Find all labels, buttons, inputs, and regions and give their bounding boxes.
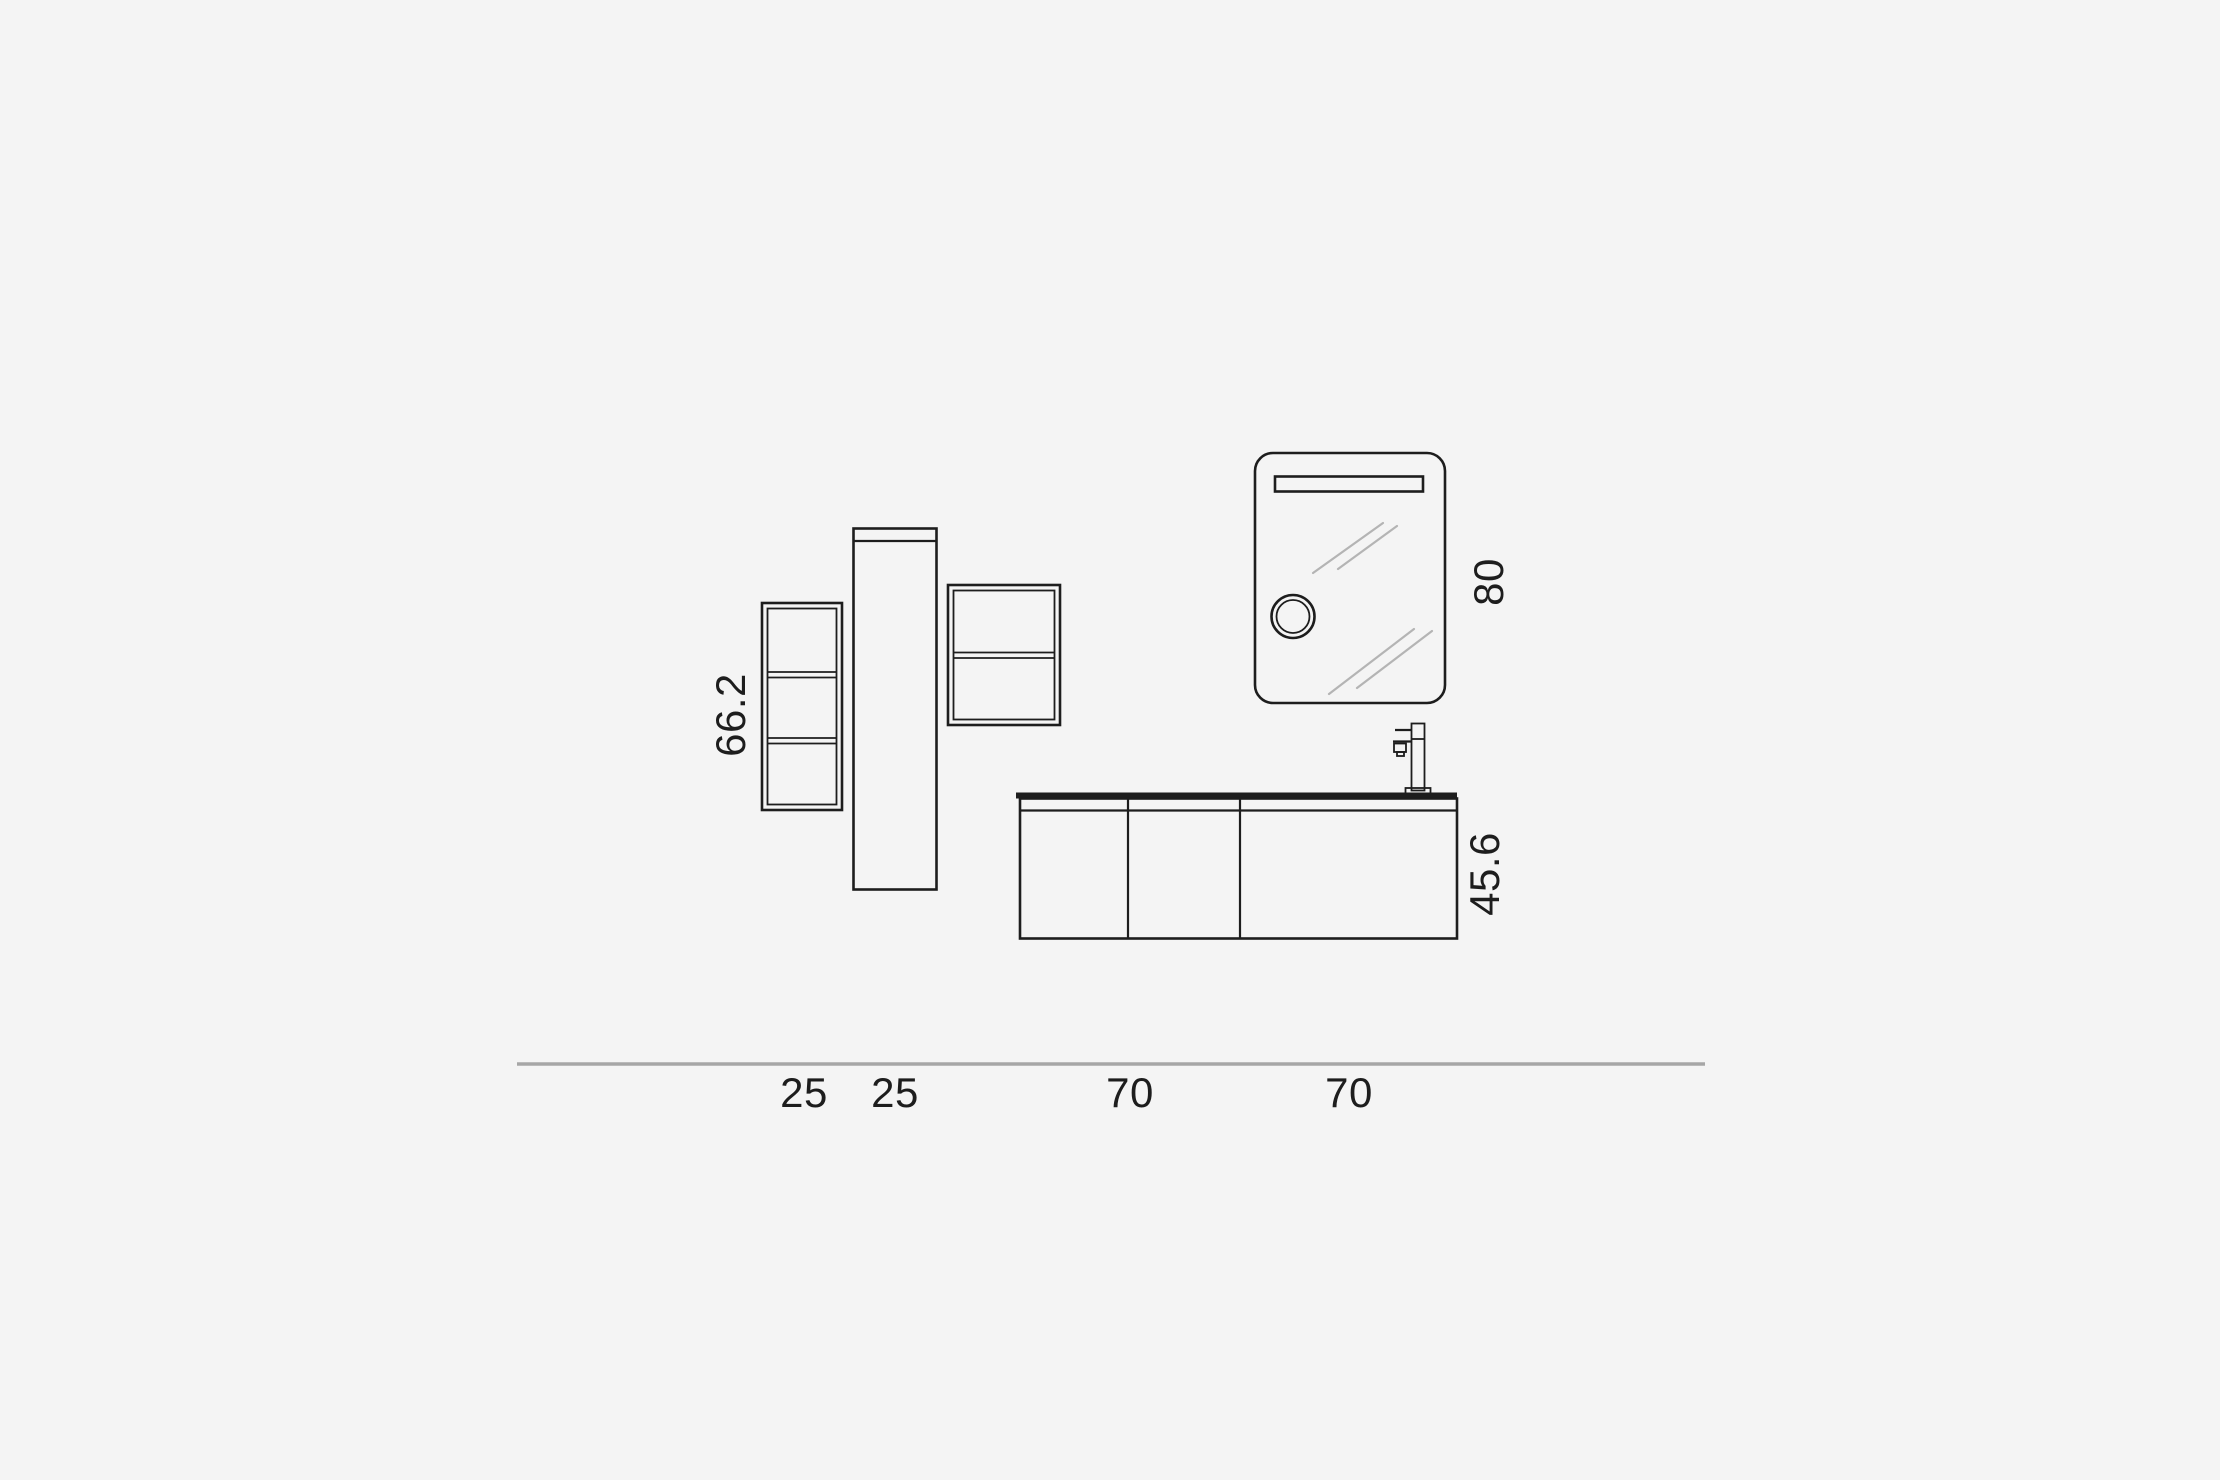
dim-label-width-vanity-right: 70 (1325, 1072, 1373, 1114)
open-shelf-unit (762, 603, 842, 810)
mirror-light-bar (1275, 477, 1423, 492)
tall-column-cabinet (854, 529, 937, 890)
dim-label-width-vanity-left: 70 (1106, 1072, 1154, 1114)
led-mirror (1255, 453, 1445, 703)
dim-label-mirror-height: 80 (1468, 558, 1510, 606)
dim-label-vanity-height: 45.6 (1464, 832, 1506, 916)
basin-faucet (1393, 724, 1431, 794)
mirror-reflection-lines (1313, 523, 1432, 694)
dim-label-width-column: 25 (871, 1072, 919, 1114)
dim-label-width-shelf-unit: 25 (780, 1072, 828, 1114)
vanity-cabinet (1016, 793, 1457, 939)
dim-label-shelf-unit-height: 66.2 (710, 673, 752, 757)
double-wall-cube (948, 585, 1060, 725)
drawing-canvas: 66.2 80 45.6 25 25 70 70 (0, 0, 2220, 1480)
magnifying-mirror (1272, 595, 1315, 638)
furniture-elevation-drawing (0, 0, 2220, 1480)
